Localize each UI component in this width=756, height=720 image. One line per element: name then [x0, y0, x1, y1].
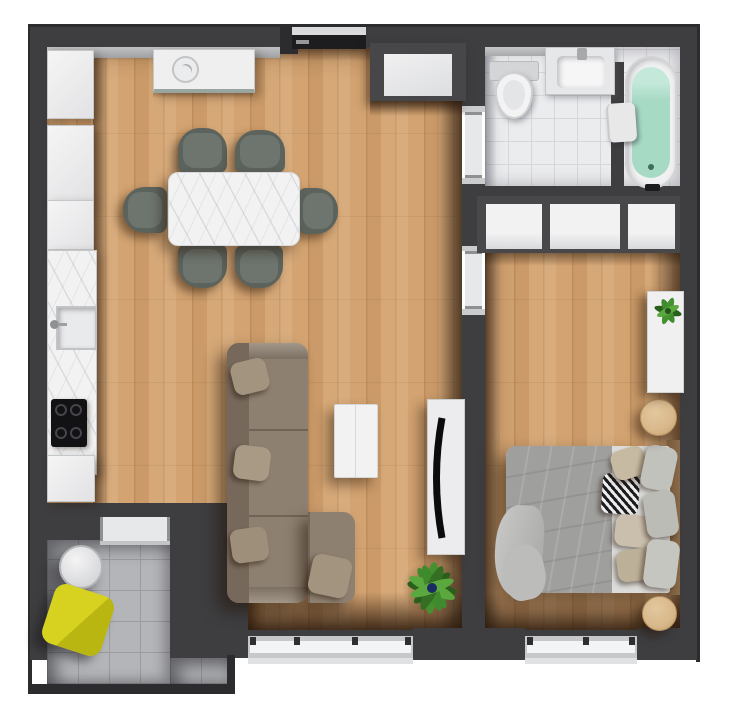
- bottom-wall-pier: [413, 628, 525, 660]
- kitchen-faucet-spout: [58, 323, 67, 326]
- potted-plant: [398, 554, 466, 622]
- wardrobe: [477, 196, 680, 253]
- balcony-railing-side: [227, 655, 235, 694]
- sofa-seam: [249, 515, 308, 517]
- kitchen-sink: [56, 306, 97, 350]
- dining-chair: [178, 128, 227, 173]
- window-mullion: [629, 637, 635, 645]
- cooktop: [51, 399, 87, 447]
- dining-table: [168, 172, 300, 246]
- sofa-pillow: [232, 444, 272, 482]
- nightstand: [640, 399, 677, 436]
- bed-pillow: [642, 538, 681, 590]
- dining-chair: [298, 188, 338, 234]
- window-mullion: [294, 637, 300, 645]
- burner: [55, 427, 67, 439]
- sofa-pillow: [229, 526, 270, 565]
- living-window-glass: [250, 641, 411, 653]
- kitchen-base-cabinet: [47, 455, 95, 502]
- balcony-wall: [37, 503, 100, 540]
- towel: [606, 102, 638, 143]
- left-wall: [30, 27, 47, 660]
- balcony-railing: [30, 684, 235, 694]
- balcony-floor-edge: [170, 658, 235, 684]
- balcony-table: [59, 545, 103, 589]
- sofa-arm: [249, 343, 308, 359]
- sofa-seam: [249, 429, 308, 431]
- sofa-pillow: [306, 552, 353, 599]
- bed-pillow: [642, 489, 680, 539]
- wardrobe-door: [486, 204, 542, 249]
- shelf-plant: [650, 293, 686, 329]
- bathroom-door: [465, 112, 482, 178]
- window-mullion: [405, 637, 411, 645]
- entry-closet: [370, 43, 466, 101]
- dining-chair: [123, 187, 167, 233]
- wardrobe-door: [628, 204, 675, 249]
- basin-faucet: [577, 48, 587, 60]
- washbasin: [557, 56, 605, 88]
- window-mullion: [352, 637, 358, 645]
- dining-chair: [235, 130, 285, 173]
- sofa-arm: [249, 587, 308, 603]
- bathroom-vanity: [545, 47, 615, 95]
- bathtub-drain: [648, 164, 654, 170]
- window-mullion: [250, 637, 256, 645]
- tv: [428, 413, 448, 543]
- coffee-table: [334, 404, 378, 478]
- toilet-seat: [503, 80, 525, 110]
- bathtub-water: [632, 67, 670, 178]
- entry-closet-front: [384, 54, 452, 96]
- balcony-door-sill: [100, 541, 170, 545]
- nightstand: [642, 596, 677, 631]
- burner: [70, 404, 82, 416]
- window-sill: [525, 658, 637, 664]
- dining-chair: [235, 245, 283, 288]
- kitchen-wall-cabinet: [47, 125, 94, 202]
- floor-plan: [0, 0, 756, 720]
- plate-detail: [178, 62, 195, 79]
- burner: [70, 427, 82, 439]
- window-mullion: [527, 637, 533, 645]
- coffee-table-seam: [355, 405, 356, 477]
- kitchen-wall-cabinet: [47, 200, 94, 250]
- bottom-corner-block: [637, 628, 697, 660]
- sideboard: [153, 49, 255, 93]
- bedroom-door: [465, 251, 482, 309]
- wardrobe-door: [550, 204, 620, 249]
- bathtub-faucet: [645, 184, 660, 191]
- window-sill: [248, 658, 413, 664]
- entrance-door-handle: [296, 40, 309, 44]
- dining-chair: [178, 244, 227, 288]
- bedroom-window-glass: [527, 641, 635, 653]
- window-mullion: [583, 637, 589, 645]
- plate: [172, 56, 199, 83]
- kitchen-wall-cabinet: [47, 50, 94, 119]
- balcony-door: [100, 517, 170, 541]
- burner: [55, 404, 67, 416]
